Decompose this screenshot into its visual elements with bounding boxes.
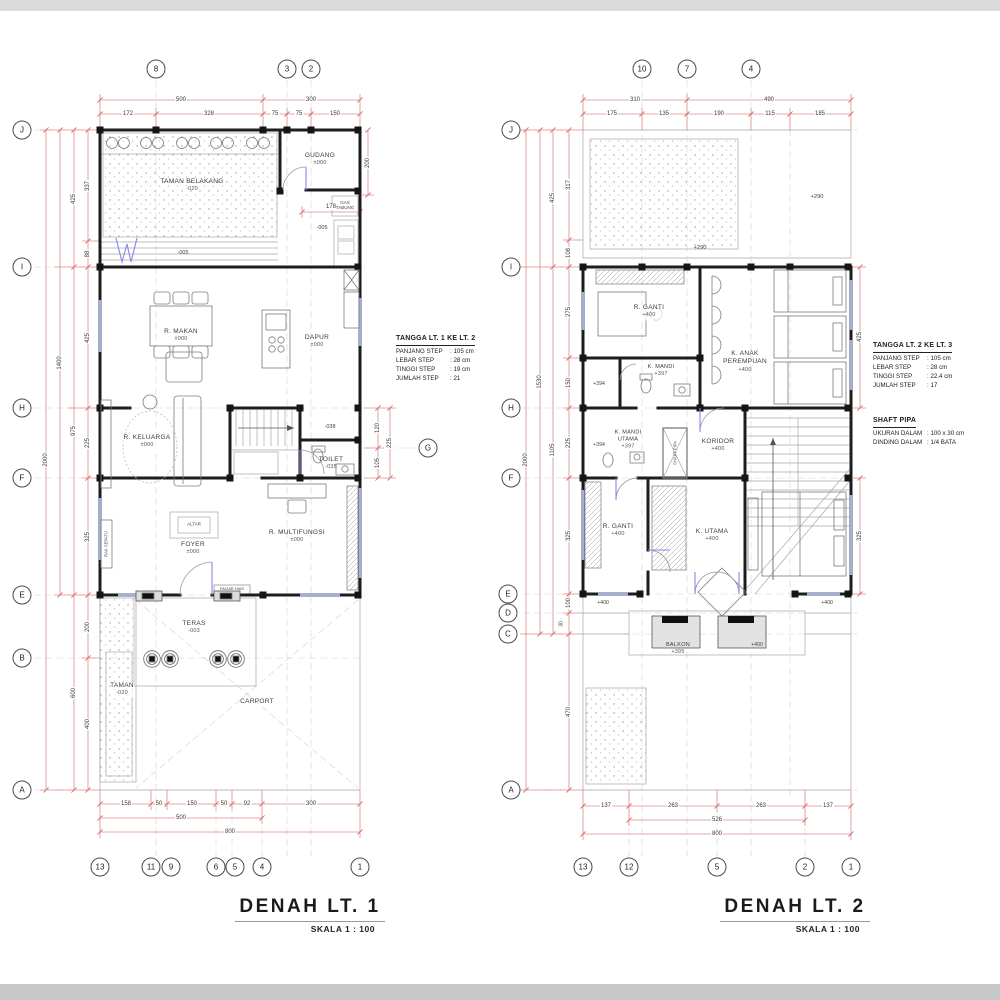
grid-bubble-col: 4	[253, 858, 272, 877]
room-label: TAMAN BELAKANG-020	[160, 178, 223, 194]
grid-bubble-col: 12	[620, 858, 639, 877]
grid-bubble-row: F	[13, 469, 32, 488]
grid-bubble-col: 1	[351, 858, 370, 877]
grid-bubble-col: 11	[142, 858, 161, 877]
grid-bubble-row: C	[499, 625, 518, 644]
dim-label: 2000	[523, 452, 529, 467]
room-label: FOYER±000	[181, 541, 205, 557]
dim-label: 263	[667, 803, 679, 809]
grid-bubble-row: J	[13, 121, 32, 140]
dim-label: 137	[822, 803, 834, 809]
grid-bubble-row: E	[13, 586, 32, 605]
room-label: TOILET-035	[319, 456, 343, 472]
dim-label: 1105	[550, 443, 556, 458]
grid-bubble-col: 5	[708, 858, 727, 877]
grid-bubble-row: G	[419, 439, 438, 458]
room-label: K. UTAMA+400	[696, 528, 729, 544]
dim-label: 490	[763, 97, 775, 103]
stair-note-lt1: TANGGA LT. 1 KE LT. 2 PANJANG STEP: 105 …	[396, 334, 514, 384]
grid-bubble-col: 2	[796, 858, 815, 877]
dim-label: 30	[560, 620, 565, 628]
dim-label: 310	[629, 97, 641, 103]
grid-bubble-col: 4	[742, 60, 761, 79]
room-label: K. MANDI+397	[648, 364, 675, 378]
dim-label: 300	[305, 97, 317, 103]
rak-sepatu-label: RAK SEPATU	[104, 531, 109, 557]
room-label: TERAS-003	[182, 620, 205, 636]
dim-label: 172	[122, 111, 134, 117]
grid-bubble-row: A	[502, 781, 521, 800]
grid-bubble-col: 1	[842, 858, 861, 877]
dim-label: 75	[295, 111, 304, 117]
dim-label: 2000	[43, 452, 49, 467]
dim-label: 108	[566, 247, 572, 259]
grid-bubble-row: E	[499, 585, 518, 604]
floor-plan-drawing	[0, 0, 1000, 1000]
shaft-pipa-label: SHAFT PIPA	[673, 441, 678, 465]
room-label: GUDANG±000	[305, 152, 335, 168]
room-label: R. KELUARGA±000	[123, 434, 170, 450]
grid-bubble-col: 9	[162, 858, 181, 877]
dim-label: 190	[713, 111, 725, 117]
dim-label: 328	[203, 111, 215, 117]
room-label: R. GANTI+400	[634, 304, 665, 320]
grid-bubble-row: I	[502, 258, 521, 277]
dim-label: 50	[155, 801, 164, 807]
dim-label: 800	[224, 829, 236, 835]
grid-bubble-row: B	[13, 649, 32, 668]
grid-bubble-col: 5	[226, 858, 245, 877]
dim-label: 115	[764, 111, 776, 117]
grid-bubble-row: J	[502, 121, 521, 140]
grid-bubble-col: 3	[278, 60, 297, 79]
dim-label: 225	[387, 437, 393, 449]
room-label: BALKON+395	[666, 642, 690, 656]
shaft-note: SHAFT PIPA UKURAN DALAM: 100 x 30 cm DIN…	[873, 416, 991, 448]
dim-label: 325	[85, 531, 91, 543]
dim-label: 225	[85, 437, 91, 449]
dim-label: 200	[365, 157, 371, 169]
room-label: KORIDOR+400	[702, 438, 734, 454]
dim-label: 175	[606, 111, 618, 117]
dim-label: 200	[85, 621, 91, 633]
level-label: +400	[597, 601, 609, 607]
pagar-hias-label: PAGAR HIAS	[220, 587, 244, 591]
dim-label: 526	[711, 817, 723, 823]
room-label: K. MANDIUTAMA+397	[615, 429, 642, 450]
dim-label: 425	[550, 192, 556, 204]
dim-label: 425	[857, 331, 863, 343]
dim-label: 75	[271, 111, 280, 117]
dim-label: 158	[120, 801, 132, 807]
page-title: DENAH LT. 1	[235, 896, 385, 922]
room-label: R. MAKAN±000	[164, 328, 198, 344]
level-label: +290	[810, 194, 823, 200]
page-title: DENAH LT. 2	[720, 896, 870, 922]
dim-label: 600	[71, 687, 77, 699]
dim-label: 150	[566, 377, 572, 389]
level-label: +394	[593, 382, 605, 388]
dim-label: 500	[175, 97, 187, 103]
dim-label: 50	[220, 801, 229, 807]
dim-label: 975	[71, 425, 77, 437]
scale-label: SKALA 1 : 100	[235, 924, 385, 934]
dim-label: 135	[658, 111, 670, 117]
dim-label: 300	[305, 801, 317, 807]
level-label: +400	[751, 643, 763, 649]
level-label: -038	[324, 424, 335, 430]
plan-title-lt1: DENAH LT. 1 SKALA 1 : 100	[235, 896, 385, 934]
room-label: K. ANAKPEREMPUAN+400	[723, 350, 767, 374]
grid-bubble-col: 7	[678, 60, 697, 79]
level-label: -005	[177, 250, 188, 256]
dim-label: 1530	[537, 374, 543, 389]
grid-bubble-row: F	[502, 469, 521, 488]
dim-label: 100	[566, 597, 572, 609]
dim-label: 317	[566, 179, 572, 191]
dim-label: 325	[857, 530, 863, 542]
dim-label: 1400	[57, 355, 63, 370]
dim-label: 137	[600, 803, 612, 809]
room-label: CARPORT	[240, 698, 274, 706]
dim-label: 185	[814, 111, 826, 117]
level-label: +290	[693, 245, 706, 251]
scale-label: SKALA 1 : 100	[720, 924, 870, 934]
dim-label: 88	[85, 250, 91, 259]
grid-bubble-col: 13	[91, 858, 110, 877]
altar-label: ALTAR	[187, 523, 201, 528]
grid-bubble-row: H	[502, 399, 521, 418]
level-label: +394	[593, 443, 605, 449]
grid-bubble-row: I	[13, 258, 32, 277]
dim-label: 105	[375, 457, 381, 469]
dim-label: 425	[71, 193, 77, 205]
dim-label: 337	[85, 180, 91, 192]
grid-bubble-row: A	[13, 781, 32, 800]
level-label: -005	[316, 225, 327, 231]
dim-label: 150	[186, 801, 198, 807]
grid-bubble-col: 10	[633, 60, 652, 79]
room-label: TAMAN-020	[110, 682, 134, 698]
dim-label: 470	[566, 706, 572, 718]
dim-label: 500	[175, 815, 187, 821]
room-label: R. GANTI+400	[603, 523, 634, 539]
stair-note-lt2: TANGGA LT. 2 KE LT. 3 PANJANG STEP: 105 …	[873, 341, 991, 391]
dim-label: 150	[329, 111, 341, 117]
grid-bubble-col: 8	[147, 60, 166, 79]
grid-bubble-col: 6	[207, 858, 226, 877]
dim-label: 225	[566, 437, 572, 449]
grid-bubble-row: D	[499, 604, 518, 623]
dim-label: 263	[755, 803, 767, 809]
dim-label: 325	[566, 530, 572, 542]
room-label: DAPUR±000	[305, 334, 329, 350]
floor-plan-sheet: 8 3 2 13 11 9 6 5 4 1 J I H F E B A G 50…	[0, 0, 1000, 1000]
dim-label: 800	[711, 831, 723, 837]
grid-bubble-col: 13	[574, 858, 593, 877]
dim-label: 120	[375, 422, 381, 434]
dim-label: 275	[566, 306, 572, 318]
gas-tabung-label: GASTABUNG	[336, 201, 354, 211]
plan-title-lt2: DENAH LT. 2 SKALA 1 : 100	[720, 896, 870, 934]
level-label: +400	[821, 601, 833, 607]
windows	[100, 280, 851, 595]
dim-label: 92	[243, 801, 252, 807]
dim-label: 425	[85, 332, 91, 344]
dim-label: 400	[85, 718, 91, 730]
room-label: R. MULTIFUNGSI±000	[269, 529, 325, 545]
grid-bubble-col: 2	[302, 60, 321, 79]
grid-bubble-row: H	[13, 399, 32, 418]
